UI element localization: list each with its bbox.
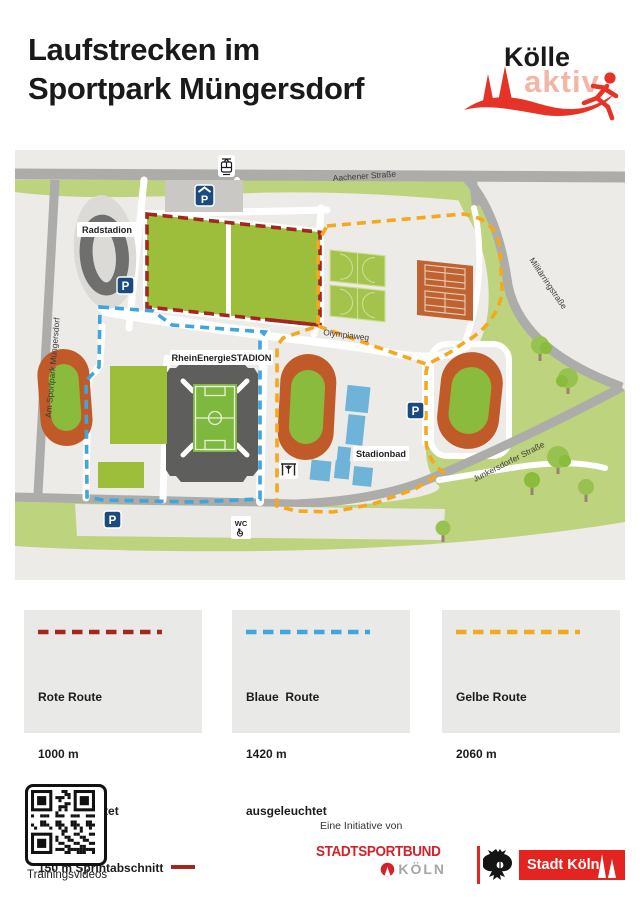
eagle-icon xyxy=(483,846,517,884)
road-aachener xyxy=(15,174,625,177)
svg-text:Radstadion: Radstadion xyxy=(82,225,132,235)
stadtsportbund-logo: STADTSPORTBUND KÖLN xyxy=(316,843,446,877)
rheinenergie-stadion xyxy=(166,363,258,482)
legend-red-distance: 1000 m xyxy=(38,745,195,764)
stadt-koeln-logo: Stadt Köln xyxy=(477,846,625,884)
legend-card-yellow: Gelbe Route 2060 m xyxy=(442,610,620,733)
pitch-west xyxy=(110,366,167,444)
poster: Laufstrecken im Sportpark Müngersdorf Kö… xyxy=(0,0,640,906)
parking-icon-south: P xyxy=(104,511,121,528)
svg-text:P: P xyxy=(122,281,130,293)
label-stadionbad: Stadionbad xyxy=(353,446,409,461)
legend-blue-name: Blaue Route xyxy=(246,688,327,707)
sports-field xyxy=(143,210,324,330)
yellow-dash-swatch xyxy=(456,628,580,636)
brand-word-bottom: aktiv xyxy=(524,64,600,99)
fitness-station-icon xyxy=(279,460,298,479)
legend-blue-note: ausgeleuchtet xyxy=(246,802,327,821)
sprint-line-swatch xyxy=(171,865,195,869)
qr-caption: Trainingsvideos xyxy=(27,869,107,881)
koelle-aktiv-logo: Kölle aktiv xyxy=(462,26,632,130)
parking-icon-radstadion: P xyxy=(117,277,134,294)
legend-card-blue: Blaue Route 1420 m ausgeleuchtet xyxy=(232,610,410,733)
legend-yellow-distance: 2060 m xyxy=(456,745,527,764)
red-dash-swatch xyxy=(38,628,162,636)
park-map: Aachener Straße Militärringstraße Junker… xyxy=(15,150,625,580)
legend-blue-distance: 1420 m xyxy=(246,745,327,764)
parking-icon-east: P xyxy=(407,402,424,419)
parking-strip xyxy=(75,504,445,540)
blue-dash-swatch xyxy=(246,628,370,636)
legend-card-red: Rote Route 1000 m ausgeleuchtet 150 m Sp… xyxy=(24,610,202,733)
title-line-1: Laufstrecken im xyxy=(28,30,364,69)
legend-red-name: Rote Route xyxy=(38,688,195,707)
page-title: Laufstrecken im Sportpark Müngersdorf xyxy=(28,30,364,108)
stadt-koeln-bar xyxy=(477,846,480,884)
stadtsportbund-city: KÖLN xyxy=(398,861,446,877)
qr-code xyxy=(25,784,107,866)
initiative-label: Eine Initiative von xyxy=(320,820,402,832)
title-line-2: Sportpark Müngersdorf xyxy=(28,69,364,108)
legend-yellow-name: Gelbe Route xyxy=(456,688,527,707)
parking-garage-icon: P xyxy=(195,185,214,206)
tram-stop-icon xyxy=(218,155,235,177)
stadt-koeln-wordmark: Stadt Köln xyxy=(527,857,600,873)
svg-text:WC: WC xyxy=(235,519,248,528)
svg-text:P: P xyxy=(201,194,208,206)
label-radstadion: Radstadion xyxy=(77,222,137,237)
svg-text:P: P xyxy=(109,515,117,527)
dom-spires-icon xyxy=(597,852,619,878)
svg-text:P: P xyxy=(412,406,420,418)
wc-icon: WC xyxy=(231,516,251,539)
label-stadion: RheinEnergieSTADION xyxy=(170,350,273,365)
pitch-south xyxy=(98,462,144,488)
stadtsportbund-wordmark: STADTSPORTBUND xyxy=(316,843,433,860)
svg-text:Stadionbad: Stadionbad xyxy=(356,449,406,459)
stadtsportbund-mark-icon xyxy=(380,862,395,877)
svg-text:RheinEnergieSTADION: RheinEnergieSTADION xyxy=(172,353,272,363)
tennis-courts xyxy=(417,260,473,321)
